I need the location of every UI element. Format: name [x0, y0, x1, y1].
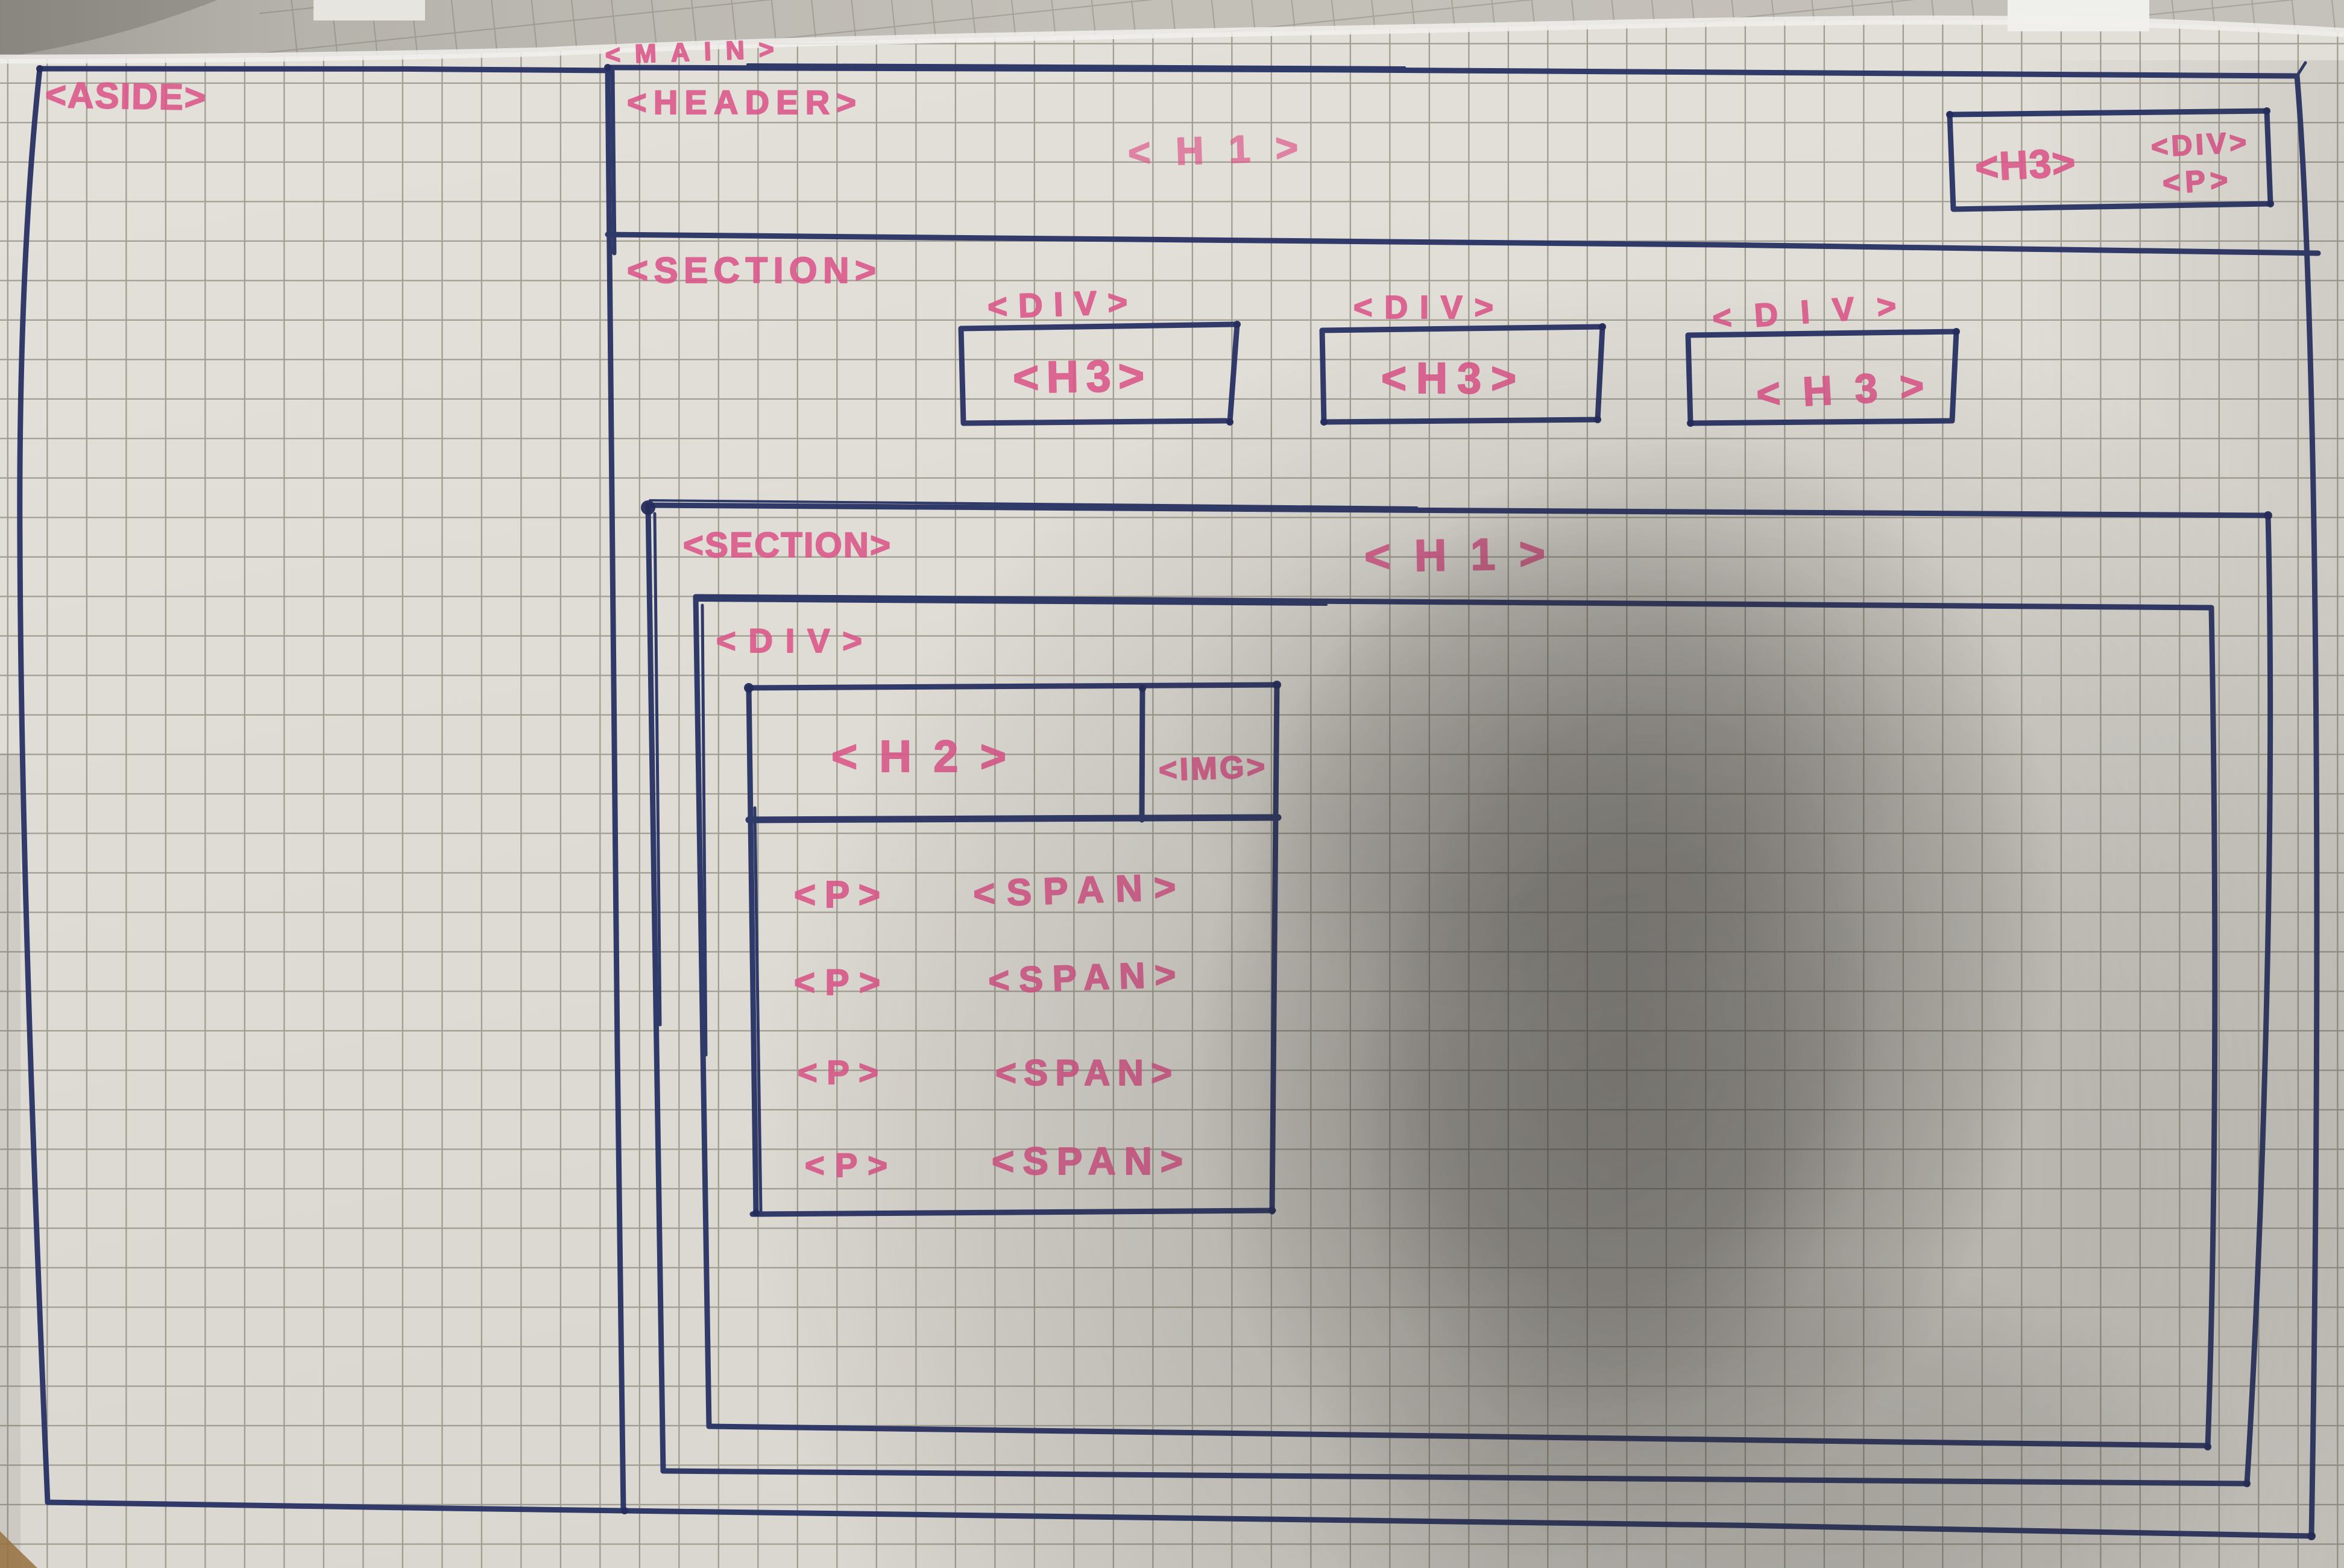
svg-text:<SECTION>: <SECTION> [627, 250, 876, 291]
svg-text:<ASIDE>: <ASIDE> [45, 75, 206, 118]
svg-text:<SECTION>: <SECTION> [683, 526, 890, 565]
